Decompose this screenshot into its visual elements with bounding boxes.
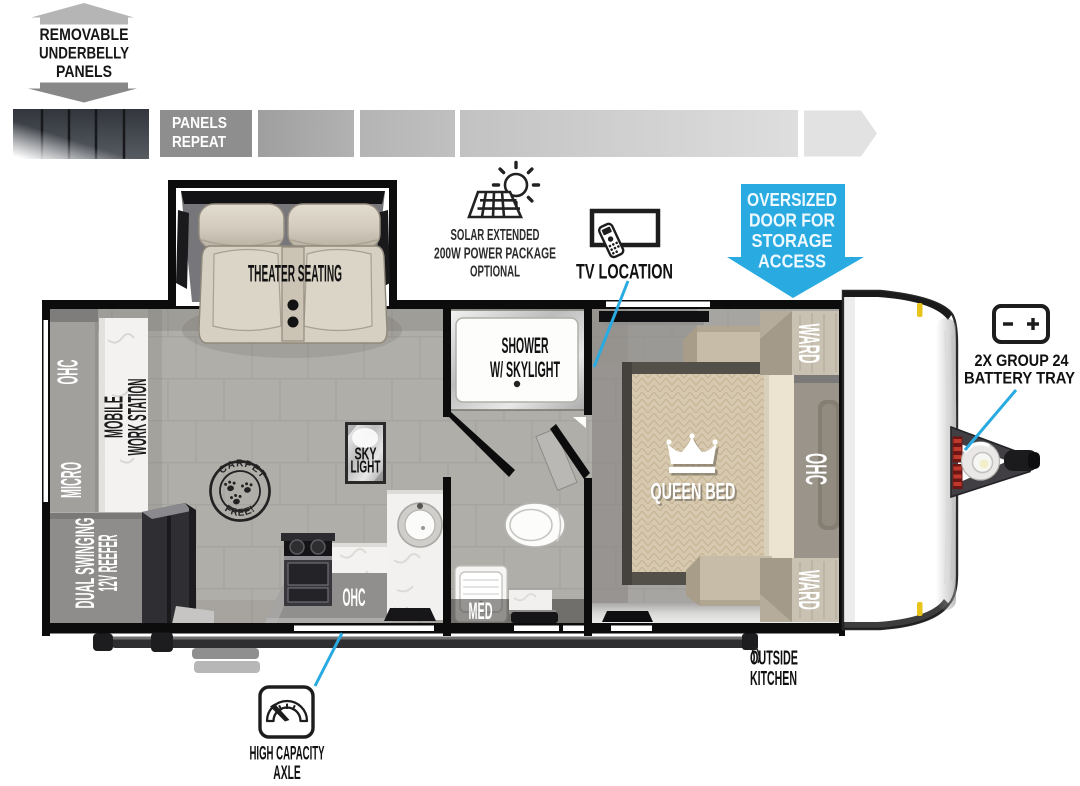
svg-text:STORAGE: STORAGE bbox=[752, 231, 833, 251]
svg-text:BATTERY TRAY: BATTERY TRAY bbox=[964, 369, 1076, 388]
svg-text:PANELS: PANELS bbox=[56, 62, 112, 81]
svg-text:MICRO: MICRO bbox=[56, 462, 88, 498]
svg-text:AXLE: AXLE bbox=[273, 762, 301, 784]
svg-text:OHC: OHC bbox=[799, 453, 832, 485]
svg-text:W/ SKYLIGHT: W/ SKYLIGHT bbox=[490, 357, 560, 382]
svg-text:OVERSIZED: OVERSIZED bbox=[747, 190, 837, 210]
svg-text:LIGHT: LIGHT bbox=[351, 457, 381, 477]
svg-text:200W POWER PACKAGE: 200W POWER PACKAGE bbox=[434, 246, 556, 263]
svg-text:SHOWER: SHOWER bbox=[502, 333, 549, 358]
svg-text:WARD: WARD bbox=[792, 324, 825, 364]
svg-text:SOLAR EXTENDED: SOLAR EXTENDED bbox=[451, 227, 540, 244]
svg-text:12V REEFER: 12V REEFER bbox=[93, 535, 123, 592]
svg-text:THEATER SEATING: THEATER SEATING bbox=[248, 261, 342, 288]
svg-text:WARD: WARD bbox=[792, 570, 825, 610]
svg-text:MED: MED bbox=[469, 598, 493, 625]
svg-text:DOOR FOR: DOOR FOR bbox=[749, 211, 835, 231]
svg-text:WORK STATION: WORK STATION bbox=[122, 379, 152, 456]
svg-text:QUEEN BED: QUEEN BED bbox=[651, 478, 736, 504]
svg-text:UNDERBELLY: UNDERBELLY bbox=[39, 44, 130, 63]
svg-text:PANELS: PANELS bbox=[172, 115, 227, 132]
svg-text:OPTIONAL: OPTIONAL bbox=[470, 264, 520, 281]
svg-text:OHC: OHC bbox=[343, 584, 366, 612]
svg-text:KITCHEN: KITCHEN bbox=[750, 668, 797, 690]
svg-text:OHC: OHC bbox=[53, 359, 85, 384]
svg-text:OUTSIDE: OUTSIDE bbox=[750, 648, 798, 670]
svg-text:REMOVABLE: REMOVABLE bbox=[40, 25, 129, 44]
svg-text:2X GROUP 24: 2X GROUP 24 bbox=[975, 351, 1069, 370]
svg-text:ACCESS: ACCESS bbox=[758, 252, 826, 272]
svg-text:TV LOCATION: TV LOCATION bbox=[576, 261, 673, 284]
svg-text:REPEAT: REPEAT bbox=[172, 134, 226, 151]
